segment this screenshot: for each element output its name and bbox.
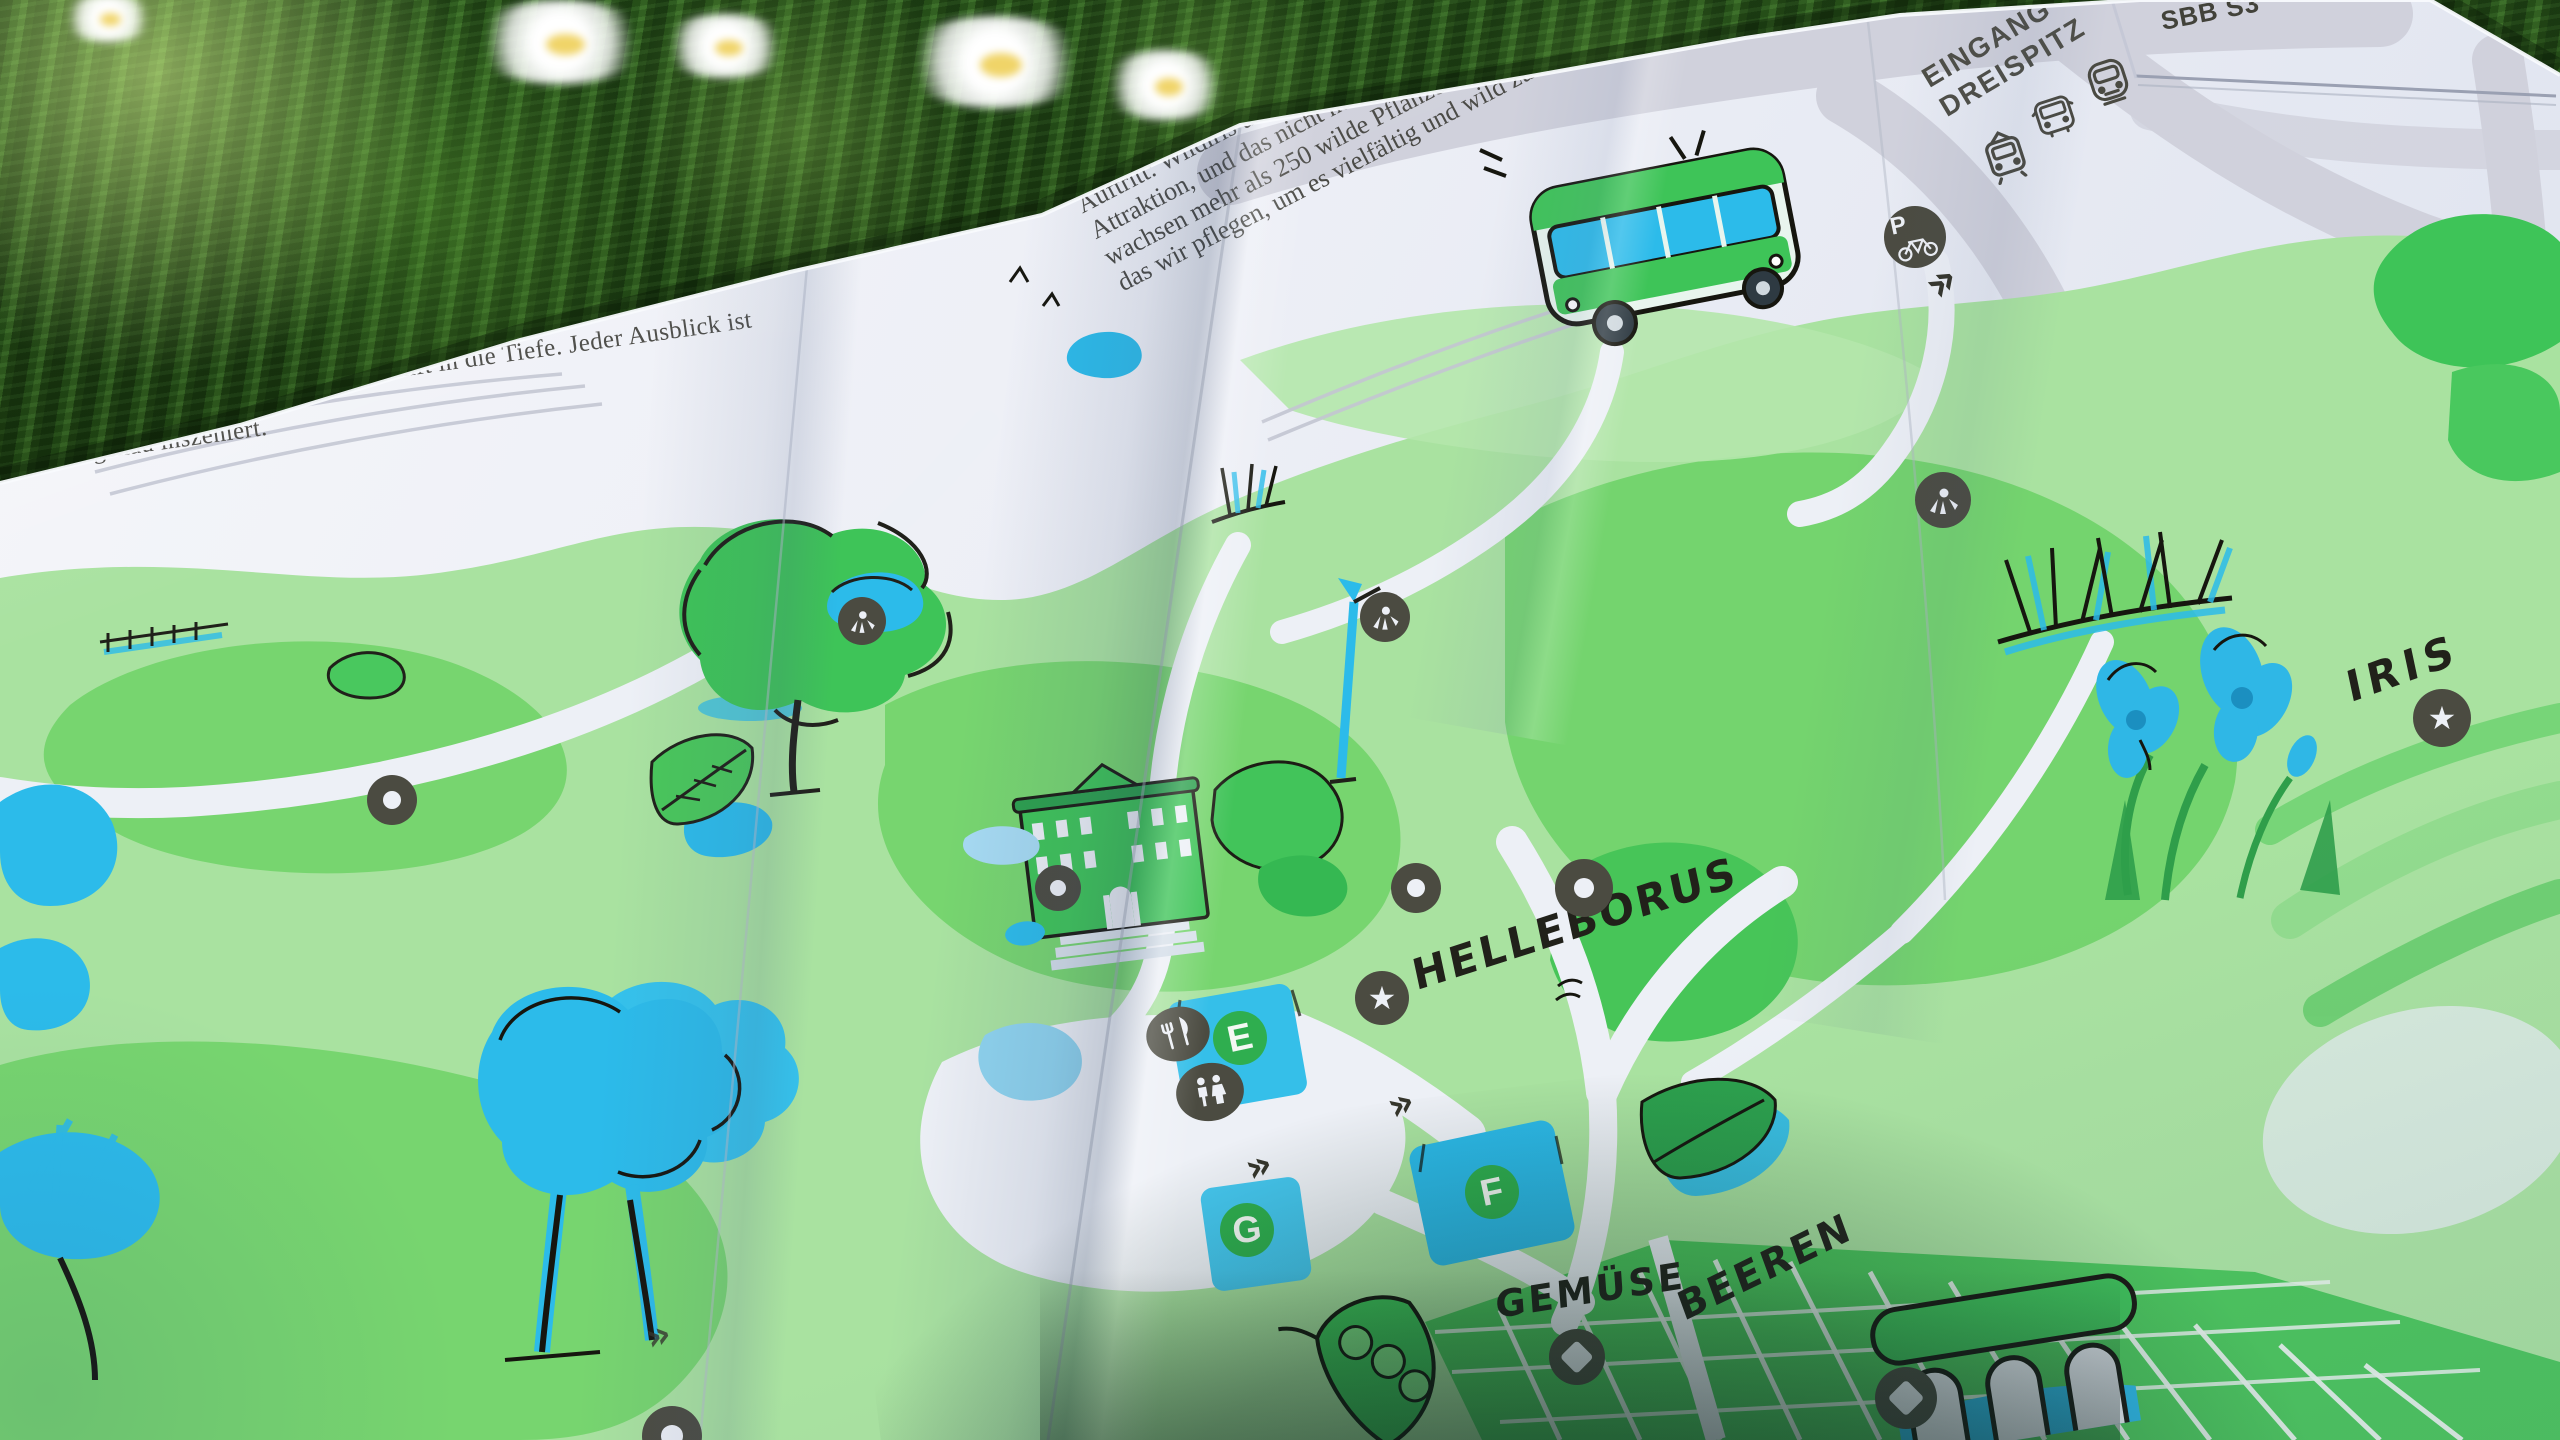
dot-icon <box>1574 878 1595 899</box>
daisy-flower <box>900 16 1090 108</box>
bush-sketch <box>328 653 404 698</box>
daisy-flower <box>1100 50 1230 120</box>
dot-icon <box>1050 880 1067 897</box>
viewpoint-marker <box>1915 472 1971 528</box>
daisy-flower <box>60 0 156 42</box>
viewpoint-marker <box>838 597 886 645</box>
diamond-icon <box>1560 1340 1593 1373</box>
badge-letter: E <box>1224 1015 1257 1061</box>
star-marker: ★ <box>2413 689 2471 747</box>
dot-icon <box>1407 879 1425 897</box>
daisy-flower <box>660 14 790 78</box>
photo-of-folded-garden-map: ENGLISCHER GARTEN Von der Terrasse der V… <box>0 0 2560 1440</box>
star-icon: ★ <box>1368 982 1397 1014</box>
dot-icon <box>661 1425 683 1440</box>
poi-marker <box>1555 859 1613 917</box>
motion-marks <box>1480 150 1506 176</box>
garden-plot-marker <box>1549 1329 1605 1385</box>
star-marker: ★ <box>1355 971 1409 1025</box>
badge-letter: G <box>1230 1207 1264 1253</box>
diamond-icon <box>1888 1380 1925 1417</box>
dot-icon <box>383 791 401 809</box>
poi-marker <box>1035 865 1081 911</box>
poi-marker <box>367 775 417 825</box>
daisy-flower <box>470 0 650 84</box>
viewpoint-marker <box>1360 592 1410 642</box>
garden-plot-marker <box>1875 1367 1937 1429</box>
badge-letter: F <box>1477 1169 1508 1215</box>
poi-marker <box>1391 863 1441 913</box>
star-icon: ★ <box>2428 702 2457 734</box>
